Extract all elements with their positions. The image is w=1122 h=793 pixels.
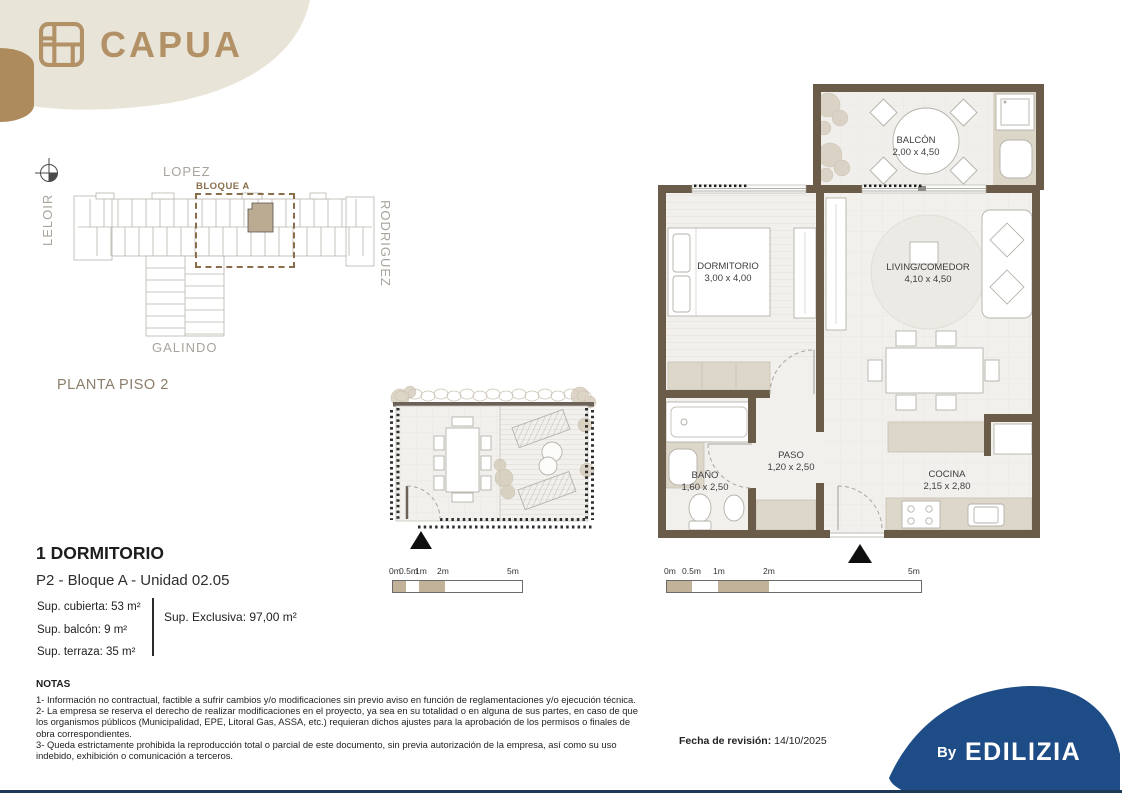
- capua-logo-icon: [39, 22, 84, 67]
- notes-block: 1- Información no contractual, factible …: [36, 694, 648, 761]
- dining-chair: [896, 331, 916, 346]
- terrace-plan-drawing: [385, 385, 600, 570]
- dining-chair: [896, 395, 916, 410]
- toilet: [689, 494, 711, 522]
- stove: [902, 501, 940, 528]
- bathtub: [666, 402, 752, 442]
- area-exclusiva: Sup. Exclusiva: 97,00 m²: [164, 610, 297, 624]
- dining-chair: [985, 360, 999, 381]
- dining-chair: [936, 395, 956, 410]
- floor-level-label: PLANTA PISO 2: [57, 377, 169, 393]
- room-label-dormitorio: DORMITORIO3,00 x 4,00: [697, 261, 759, 285]
- edilizia-logo: By EDILIZIA: [887, 658, 1122, 793]
- room-label-paso: PASO1,20 x 2,50: [767, 450, 814, 474]
- entrance-arrow-icon: [410, 531, 432, 549]
- north-indicator-icon: [35, 158, 58, 182]
- info-divider: [152, 598, 154, 656]
- hedge-plants: [395, 389, 591, 401]
- street-label-galindo: GALINDO: [152, 340, 218, 355]
- room-label-balcon: BALCÓN2,00 x 4,50: [892, 135, 939, 159]
- area-terraza: Sup. terraza: 35 m²: [37, 646, 135, 658]
- floorplan-sheet: CAPUA LOPEZ LELOIR ROD: [0, 0, 1122, 793]
- bidet: [724, 495, 744, 521]
- unit-scale-bar: 0m 0.5m 1m 2m 5m: [660, 566, 926, 598]
- room-label-bano: BAÑO1,60 x 2,50: [681, 470, 728, 494]
- dining-table: [886, 348, 983, 393]
- hall-closet: [756, 500, 816, 530]
- revision-date: Fecha de revisión: 14/10/2025: [679, 735, 827, 747]
- fridge: [994, 424, 1032, 454]
- street-label-leloir: LELOIR: [40, 194, 55, 246]
- pillow: [673, 234, 690, 272]
- entrance-arrow-icon: [848, 544, 872, 563]
- note-item: 2- La empresa se reserva el derecho de r…: [36, 705, 648, 739]
- laundry-tub: [1000, 140, 1032, 178]
- side-table: [539, 457, 557, 475]
- dining-chair: [868, 360, 882, 381]
- coffee-table: [910, 242, 938, 264]
- kitchen-island: [888, 422, 986, 452]
- area-balcon: Sup. balcón: 9 m²: [37, 624, 127, 636]
- unit-plan-drawing: [650, 78, 1050, 570]
- note-item: 1- Información no contractual, factible …: [36, 694, 648, 705]
- block-a-label: BLOQUE A: [196, 181, 250, 192]
- header-accent-shape: [0, 48, 34, 122]
- room-label-living-comedor: LIVING/COMEDOR4,10 x 4,50: [886, 262, 969, 286]
- street-label-lopez: LOPEZ: [163, 164, 211, 179]
- notes-heading: NOTAS: [36, 679, 70, 690]
- capua-logo-text: CAPUA: [100, 24, 243, 66]
- room-label-cocina: COCINA2,15 x 2,80: [923, 469, 970, 493]
- street-label-rodriguez: RODRIGUEZ: [378, 200, 393, 287]
- unit-type-title: 1 DORMITORIO: [36, 543, 164, 564]
- unit-location-subtitle: P2 - Bloque A - Unidad 02.05: [36, 572, 229, 589]
- pillow: [673, 276, 690, 312]
- block-a-outline: [195, 193, 295, 268]
- edilizia-wordmark: EDILIZIA: [965, 738, 1081, 766]
- area-cubierta: Sup. cubierta: 53 m²: [37, 601, 141, 613]
- dining-chair: [936, 331, 956, 346]
- terrace-scale-bar: 0m 0.5m 1m 2m 5m: [386, 566, 531, 598]
- note-item: 3- Queda estrictamente prohibida la repr…: [36, 739, 648, 761]
- bedroom-closet: [668, 362, 770, 390]
- by-label: By: [937, 744, 957, 761]
